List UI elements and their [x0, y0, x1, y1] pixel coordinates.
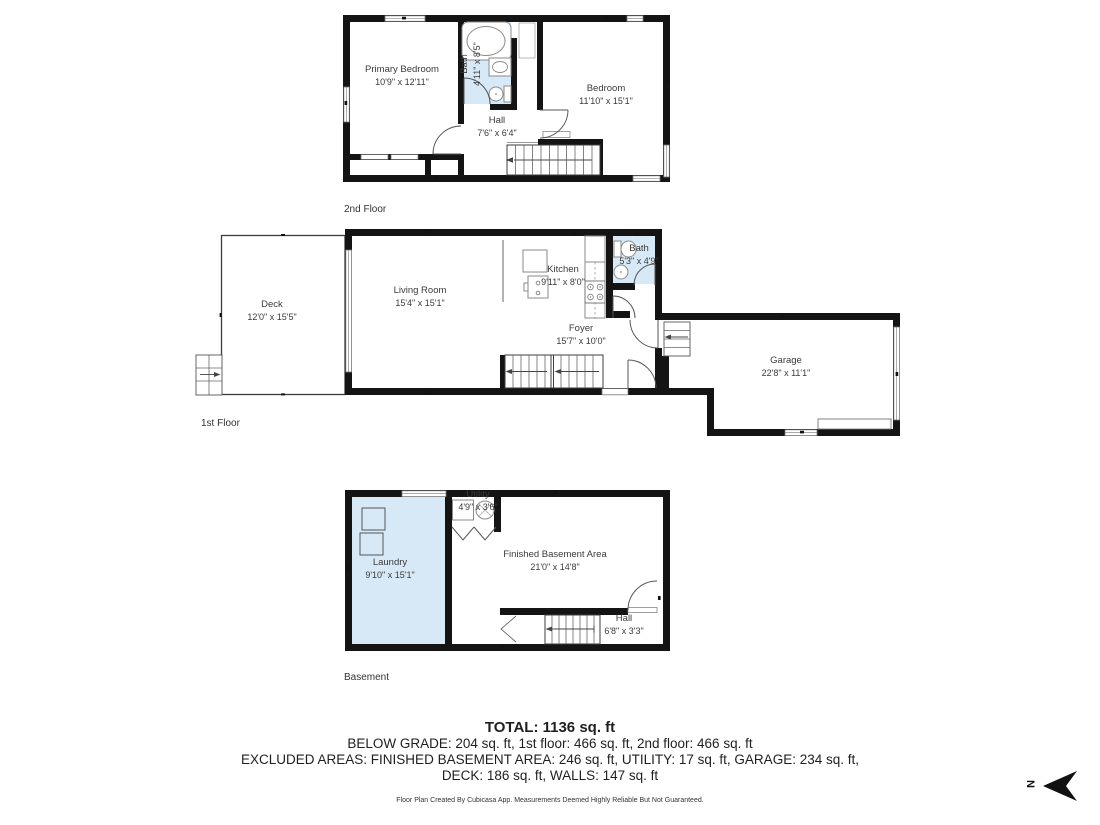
floor-label-basement: Basement: [344, 672, 389, 683]
basement-stairs: [545, 615, 600, 644]
room-label-bath-1f: Bath 5'3" x 4'9": [619, 243, 658, 267]
floor-label-1st: 1st Floor: [201, 418, 240, 429]
excluded-areas-text: EXCLUDED AREAS: FINISHED BASEMENT AREA: …: [0, 752, 1100, 768]
room-dims: 12'0" x 15'5": [247, 311, 296, 323]
floorplan-graphics: [0, 0, 1100, 825]
room-dims: 9'11" x 8'0": [541, 276, 585, 288]
ajar-door: [501, 616, 516, 642]
room-name: Foyer: [556, 323, 605, 336]
disclaimer-text: Floor Plan Created By Cubicasa App. Meas…: [0, 797, 1100, 804]
sink-icon: [489, 58, 511, 76]
room-dims: 9'10" x 15'1": [365, 569, 414, 581]
excluded-areas-text-2: DECK: 186 sq. ft, WALLS: 147 sq. ft: [0, 768, 1100, 784]
room-name: Living Room: [394, 285, 447, 298]
room-name: Deck: [247, 299, 296, 312]
room-label-hall-basement: Hall 6'8" x 3'3": [604, 613, 643, 637]
room-name: Utility: [458, 489, 497, 502]
deck-stairs: [196, 355, 222, 395]
bifold-doors: [452, 527, 496, 540]
room-label-finished-basement: Finished Basement Area 21'0" x 14'8": [503, 549, 607, 573]
area-summary: TOTAL: 1136 sq. ft BELOW GRADE: 204 sq. …: [0, 719, 1100, 804]
room-name: Laundry: [365, 557, 414, 570]
room-name: Finished Basement Area: [503, 549, 607, 562]
room-label-living-room: Living Room 15'4" x 15'1": [394, 285, 447, 309]
room-label-garage: Garage 22'8" x 11'1": [762, 355, 811, 379]
room-dims: 5'3" x 4'9": [619, 255, 658, 267]
toilet-icon: [489, 86, 511, 102]
room-label-laundry: Laundry 9'10" x 15'1": [365, 557, 414, 581]
room-name: Kitchen: [541, 264, 585, 277]
room-dims: 15'7" x 10'0": [556, 335, 605, 347]
room-dims: 22'8" x 11'1": [762, 367, 811, 379]
room-label-foyer: Foyer 15'7" x 10'0": [556, 323, 605, 347]
room-name: Bath: [459, 42, 472, 86]
garage-door-panel: [818, 419, 891, 429]
floorplan-page: Primary Bedroom 10'9" x 12'11" Bath 4'11…: [0, 0, 1100, 825]
room-name: Hall: [604, 613, 643, 626]
floor-label-2nd: 2nd Floor: [344, 204, 386, 215]
below-grade-text: BELOW GRADE: 204 sq. ft, 1st floor: 466 …: [0, 736, 1100, 752]
room-label-deck: Deck 12'0" x 15'5": [247, 299, 296, 323]
stove-icon: [585, 281, 605, 303]
room-name: Bath: [619, 243, 658, 256]
closet-shelf: [519, 23, 535, 58]
first-floor-plan: [196, 229, 900, 436]
room-name: Garage: [762, 355, 811, 368]
room-dims: 4'9" x 3'6": [458, 501, 497, 513]
total-area-text: TOTAL: 1136 sq. ft: [0, 719, 1100, 736]
room-dims: 7'6" x 6'4": [477, 127, 516, 139]
room-dims: 15'4" x 15'1": [394, 297, 447, 309]
garage-stairs: [664, 322, 690, 356]
room-dims: 21'0" x 14'8": [503, 561, 607, 573]
room-dims: 4'11" x 8'5": [471, 42, 483, 86]
room-dims: 10'9" x 12'11": [365, 76, 439, 88]
room-name: Primary Bedroom: [365, 64, 439, 77]
room-label-primary-bedroom: Primary Bedroom 10'9" x 12'11": [365, 64, 439, 88]
door-arc: [628, 581, 657, 610]
room-label-bath-2f: Bath 4'11" x 8'5": [459, 42, 483, 86]
room-dims: 11'10" x 15'1": [579, 95, 633, 107]
door-leaf: [628, 608, 657, 613]
room-label-utility: Utility 4'9" x 3'6": [458, 489, 497, 513]
room-label-hall-2f: Hall 7'6" x 6'4": [477, 115, 516, 139]
foyer-stairs: [505, 355, 603, 388]
compass-north-letter: N: [1024, 780, 1036, 788]
room-label-kitchen: Kitchen 9'11" x 8'0": [541, 264, 585, 288]
staircase: [506, 132, 600, 176]
room-dims: 6'8" x 3'3": [604, 625, 643, 637]
room-name: Bedroom: [579, 83, 633, 96]
room-name: Hall: [477, 115, 516, 128]
room-label-bedroom: Bedroom 11'10" x 15'1": [579, 83, 633, 107]
